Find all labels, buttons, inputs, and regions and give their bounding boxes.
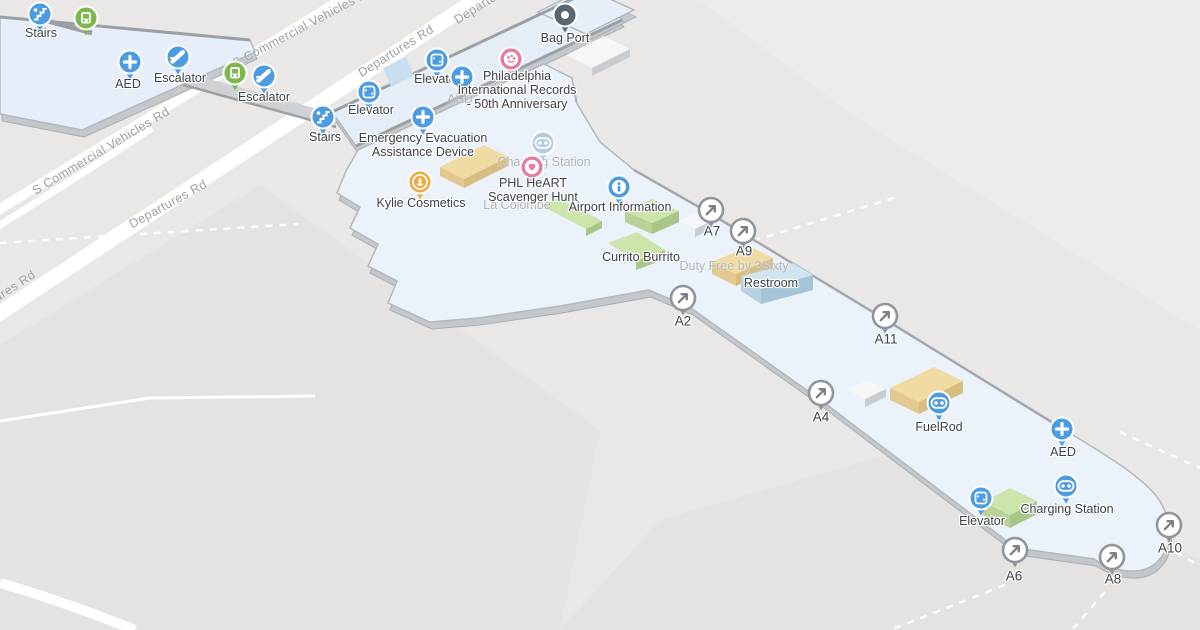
gate-label-a9[interactable]: A9 <box>736 243 753 258</box>
gate-label-a7[interactable]: A7 <box>704 223 721 238</box>
map-viewport[interactable]: Departures RdDepartures RdDepartures RdD… <box>0 0 1200 630</box>
gate-arrow-icon <box>873 304 897 334</box>
poi-label-kylie-cosmetics[interactable]: Kylie Cosmetics <box>377 196 466 210</box>
poi-label-aed-west[interactable]: AED <box>115 77 141 91</box>
elevator-icon <box>970 487 993 516</box>
poi-pin-shuttle-1[interactable] <box>69 1 103 45</box>
gate-label-a6[interactable]: A6 <box>1006 568 1023 583</box>
plus-icon <box>119 51 142 80</box>
road-label: Departures Rd <box>452 0 533 27</box>
charging-icon <box>928 392 951 421</box>
bag-icon <box>554 4 577 33</box>
road-label: Departures Rd <box>127 177 209 231</box>
poi-label-currito-burrito[interactable]: Currito Burrito <box>602 250 680 264</box>
poi-label-stairs-upper[interactable]: Stairs <box>25 26 57 40</box>
poi-label-phl-heart-scavenger-hunt[interactable]: PHL HeART Scavenger Hunt <box>488 176 578 204</box>
charging-icon <box>1055 475 1078 504</box>
plus-icon <box>1051 418 1074 447</box>
gate-arrow-icon <box>1157 513 1181 543</box>
poi-label-escalator-2[interactable]: Escalator <box>238 90 290 104</box>
poi-label-airport-information[interactable]: Airport Information <box>569 200 672 214</box>
road-label: Departures Rd <box>0 268 38 327</box>
poi-label-escalator-1[interactable]: Escalator <box>154 71 206 85</box>
gate-arrow-icon <box>1100 545 1124 575</box>
transit-icon <box>75 7 98 36</box>
gate-arrow-icon <box>1003 538 1027 568</box>
gate-arrow-icon <box>809 381 833 411</box>
gate-label-a11[interactable]: A11 <box>874 331 897 346</box>
poi-label-aed-east[interactable]: AED <box>1050 445 1076 459</box>
poi-label-elevator-mid[interactable]: Elevator <box>348 103 394 117</box>
poi-label-fuelrod[interactable]: FuelRod <box>915 420 962 434</box>
poi-label-duty-free-3sixty[interactable]: Duty Free by 3Sixty <box>679 259 788 273</box>
transit-icon <box>224 62 247 91</box>
poi-label-philadelphia-records[interactable]: Philadelphia International Records - 50t… <box>458 69 577 111</box>
poi-label-stairs-mid[interactable]: Stairs <box>309 130 341 144</box>
gate-label-a2[interactable]: A2 <box>675 313 692 328</box>
poi-label-restroom[interactable]: Restroom <box>744 276 798 290</box>
gate-label-a8[interactable]: A8 <box>1105 571 1122 586</box>
poi-label-bag-port[interactable]: Bag Port <box>541 31 590 45</box>
gate-label-a10[interactable]: A10 <box>1158 540 1182 555</box>
gate-arrow-icon <box>671 286 695 316</box>
map-overlay: Departures RdDepartures RdDepartures RdD… <box>0 0 1200 630</box>
gate-label-a4[interactable]: A4 <box>813 409 830 424</box>
poi-label-elevator-east[interactable]: Elevator <box>959 514 1005 528</box>
poi-label-charging-station-east[interactable]: Charging Station <box>1020 502 1113 516</box>
road-label: S Commercial Vehicles Rd <box>30 104 172 197</box>
poi-label-emergency-evac-device[interactable]: Emergency Evacuation Assistance Device <box>359 131 488 159</box>
